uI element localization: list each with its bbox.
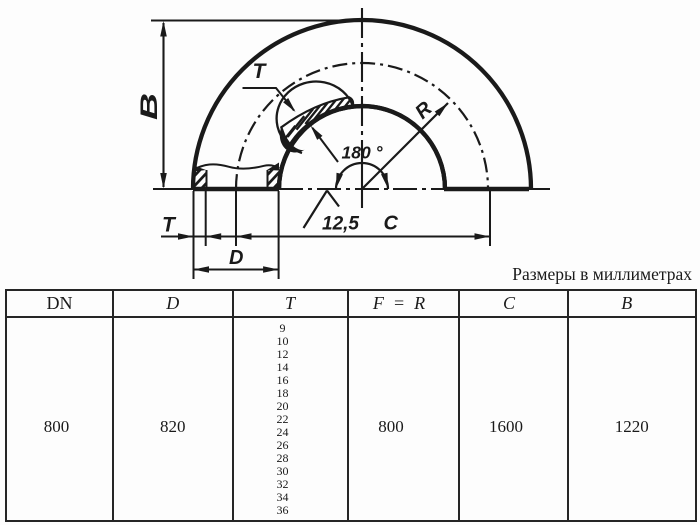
svg-text:B: B bbox=[136, 93, 163, 120]
svg-text:180 °: 180 ° bbox=[342, 143, 384, 163]
svg-text:T: T bbox=[253, 60, 268, 83]
svg-text:12,5: 12,5 bbox=[322, 214, 359, 235]
svg-text:C: C bbox=[384, 213, 399, 235]
svg-text:T: T bbox=[162, 214, 177, 237]
svg-text:R: R bbox=[411, 97, 437, 123]
svg-text:D: D bbox=[229, 247, 243, 269]
